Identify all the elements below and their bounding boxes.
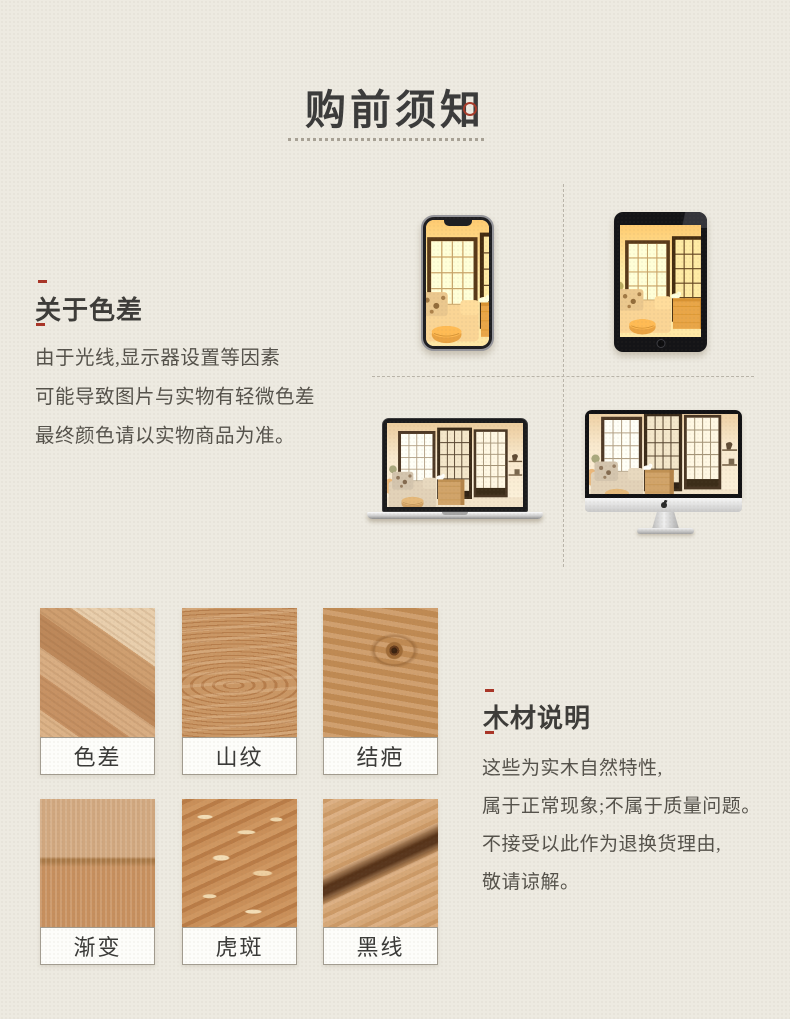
note-line: 最终颜色请以实物商品为准。	[35, 417, 315, 456]
room-photo	[620, 225, 701, 337]
wood-texture-黑线	[323, 799, 438, 927]
note-line: 不接受以此作为退换货理由,	[482, 826, 761, 864]
page-title: 购前须知	[0, 76, 790, 136]
accent-dash-bottom	[485, 731, 494, 734]
desktop-monitor-mockup	[585, 410, 742, 498]
smartphone-mockup	[421, 215, 494, 351]
swatch-label: 黑线	[323, 927, 438, 965]
desktop-base	[637, 528, 694, 534]
accent-dash-bottom	[36, 323, 45, 326]
note-line: 可能导致图片与实物有轻微色差	[35, 378, 315, 417]
pre-purchase-notice-page: 购前须知 关于色差 由于光线,显示器设置等因素 可能导致图片与实物有轻微色差 最…	[0, 0, 790, 1019]
tablet-screen	[620, 225, 701, 337]
color-note-paragraph: 由于光线,显示器设置等因素 可能导致图片与实物有轻微色差 最终颜色请以实物商品为…	[35, 339, 315, 456]
wood-note-heading: 木材说明	[483, 698, 591, 735]
wood-texture-山纹	[182, 608, 297, 737]
swatch-label: 色差	[40, 737, 155, 775]
note-line: 敬请谅解。	[482, 864, 761, 902]
wood-texture-虎斑	[182, 799, 297, 927]
home-button-icon	[656, 339, 665, 348]
tablet-mockup	[614, 212, 707, 352]
wood-texture-色差	[40, 608, 155, 737]
swatch-label: 山纹	[182, 737, 297, 775]
laptop-base	[367, 512, 543, 519]
laptop-mockup	[382, 418, 528, 512]
room-photo	[426, 220, 489, 346]
phone-notch	[444, 220, 472, 226]
wood-texture-渐变	[40, 799, 155, 927]
desktop-stand	[652, 512, 679, 529]
title-dotted-divider	[288, 138, 484, 141]
laptop-screen	[387, 423, 523, 507]
swatch-label: 渐变	[40, 927, 155, 965]
swatch-cell: 色差	[40, 608, 155, 775]
room-photo	[387, 423, 523, 507]
desktop-chin	[585, 498, 742, 512]
smartphone-screen	[426, 220, 489, 346]
swatch-cell: 虎斑	[182, 799, 297, 965]
red-seal-icon	[463, 102, 477, 116]
note-line: 由于光线,显示器设置等因素	[35, 339, 315, 378]
accent-dash-top	[485, 689, 494, 692]
swatch-cell: 山纹	[182, 608, 297, 775]
room-photo	[589, 414, 738, 494]
swatch-cell: 结疤	[323, 608, 438, 775]
accent-dash-top	[38, 280, 47, 283]
swatch-label: 虎斑	[182, 927, 297, 965]
color-note-heading: 关于色差	[35, 290, 143, 327]
wood-texture-结疤	[323, 608, 438, 737]
swatch-cell: 黑线	[323, 799, 438, 965]
swatch-label: 结疤	[323, 737, 438, 775]
wood-note-paragraph: 这些为实木自然特性, 属于正常现象;不属于质量问题。 不接受以此作为退换货理由,…	[482, 750, 761, 902]
desktop-screen	[589, 414, 738, 494]
horizontal-dashed-divider	[372, 376, 754, 377]
note-line: 属于正常现象;不属于质量问题。	[482, 788, 761, 826]
apple-logo-icon	[661, 502, 667, 508]
note-line: 这些为实木自然特性,	[482, 750, 761, 788]
swatch-cell: 渐变	[40, 799, 155, 965]
